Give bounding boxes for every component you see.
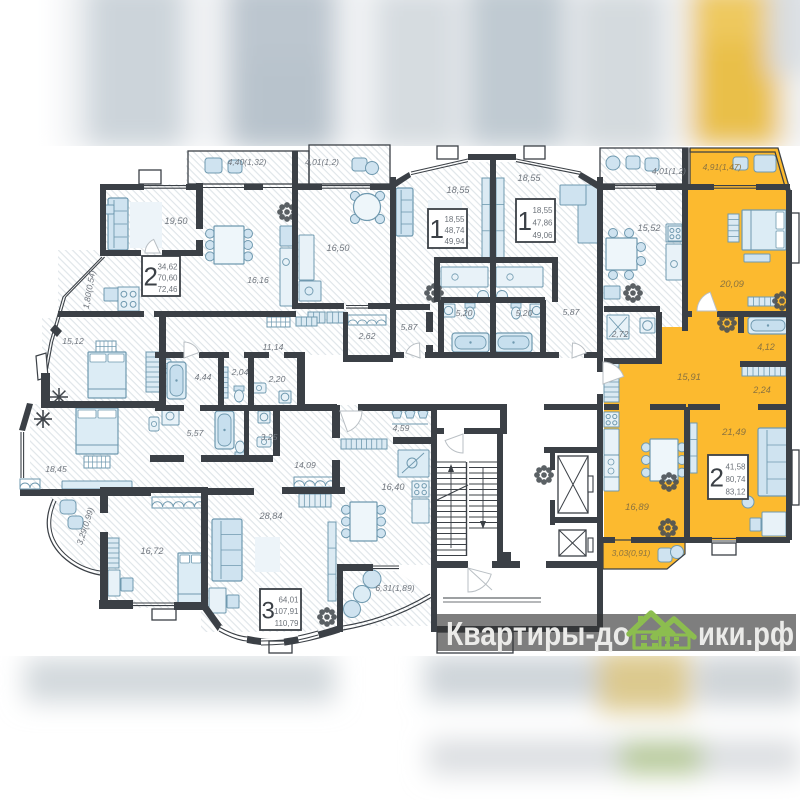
svg-text:5,20: 5,20 [456, 308, 473, 318]
svg-text:107,91: 107,91 [274, 607, 299, 616]
svg-text:83,12: 83,12 [725, 488, 746, 497]
svg-text:ики.рф: ики.рф [698, 615, 794, 652]
svg-text:11,14: 11,14 [263, 342, 284, 352]
svg-text:1: 1 [518, 206, 532, 236]
svg-text:5,87: 5,87 [401, 322, 419, 332]
svg-text:4,40(1,32): 4,40(1,32) [228, 157, 267, 167]
svg-text:4,91(1,47): 4,91(1,47) [703, 162, 742, 172]
svg-text:48,74: 48,74 [444, 226, 465, 235]
svg-text:14,09: 14,09 [294, 460, 316, 470]
svg-text:15,52: 15,52 [638, 223, 661, 233]
svg-text:19,50: 19,50 [165, 216, 189, 226]
svg-text:18,45: 18,45 [45, 464, 67, 474]
svg-text:2,72: 2,72 [611, 329, 629, 339]
svg-text:16,40: 16,40 [382, 482, 406, 492]
svg-text:72,46: 72,46 [157, 285, 178, 294]
svg-text:5,20: 5,20 [516, 308, 533, 318]
svg-text:18,55: 18,55 [518, 173, 542, 183]
svg-text:2: 2 [144, 262, 158, 292]
svg-text:28,84: 28,84 [259, 511, 283, 521]
svg-text:47,86: 47,86 [532, 218, 553, 227]
svg-text:3,25: 3,25 [261, 432, 278, 442]
svg-text:6,31(1,89): 6,31(1,89) [375, 583, 414, 593]
svg-text:2,62: 2,62 [358, 331, 376, 341]
svg-text:15,91: 15,91 [677, 372, 701, 383]
svg-text:4,59: 4,59 [393, 423, 410, 433]
svg-text:15,12: 15,12 [62, 336, 84, 346]
svg-text:3: 3 [262, 597, 275, 624]
svg-text:16,72: 16,72 [141, 546, 164, 556]
svg-text:49,94: 49,94 [444, 237, 465, 246]
svg-text:70,60: 70,60 [157, 274, 178, 283]
svg-text:2: 2 [710, 463, 724, 493]
svg-text:4,44: 4,44 [195, 372, 212, 382]
svg-text:18,55: 18,55 [532, 206, 553, 215]
svg-text:3,03(0,91): 3,03(0,91) [612, 548, 651, 558]
svg-text:41,58: 41,58 [725, 462, 746, 471]
svg-text:49,06: 49,06 [532, 231, 553, 240]
svg-text:64,01: 64,01 [278, 596, 299, 605]
svg-text:110,79: 110,79 [275, 619, 299, 628]
svg-text:16,50: 16,50 [327, 243, 351, 253]
svg-text:16,16: 16,16 [247, 275, 269, 285]
svg-text:4,01(1,2): 4,01(1,2) [652, 166, 686, 176]
svg-text:4,01(1,2): 4,01(1,2) [305, 157, 339, 167]
svg-text:80,74: 80,74 [725, 475, 746, 484]
svg-text:2,04: 2,04 [231, 367, 249, 377]
svg-text:5,57: 5,57 [187, 428, 205, 438]
svg-text:18,55: 18,55 [447, 185, 471, 195]
svg-text:5,87: 5,87 [563, 307, 581, 317]
svg-text:Квартиры-до: Квартиры-до [446, 615, 630, 652]
svg-text:21,49: 21,49 [721, 427, 746, 438]
svg-text:18,55: 18,55 [444, 215, 465, 224]
svg-text:2,24: 2,24 [752, 385, 771, 395]
svg-text:4,12: 4,12 [757, 342, 775, 352]
svg-text:16,89: 16,89 [625, 502, 649, 513]
svg-text:34,62: 34,62 [157, 262, 178, 271]
svg-text:20,09: 20,09 [719, 279, 744, 290]
svg-text:2,20: 2,20 [268, 374, 286, 384]
svg-text:1: 1 [430, 214, 444, 244]
